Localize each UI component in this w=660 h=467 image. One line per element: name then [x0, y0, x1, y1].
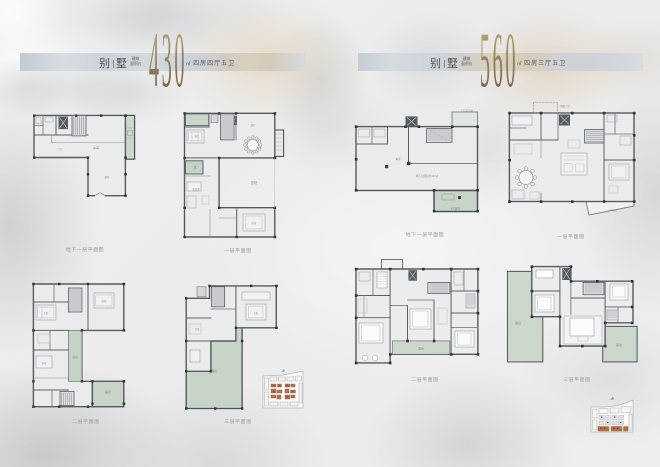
svg-text:梯: 梯	[194, 166, 197, 170]
svg-text:车库: 车库	[93, 145, 99, 150]
svg-text:露台: 露台	[105, 390, 111, 394]
svg-text:卧室: 卧室	[42, 361, 47, 365]
svg-text:露台: 露台	[418, 347, 424, 351]
svg-text:雨棚上空: 雨棚上空	[560, 104, 571, 108]
svg-text:入户花园: 入户花园	[607, 208, 618, 212]
svg-text:下沉庭院: 下沉庭院	[450, 207, 461, 211]
svg-text:主卧: 主卧	[44, 311, 49, 315]
svg-text:卧室: 卧室	[102, 299, 107, 303]
svg-text:客厅: 客厅	[195, 134, 200, 138]
svg-text:露台: 露台	[616, 342, 622, 347]
svg-text:餐厅: 餐厅	[251, 123, 256, 127]
svg-text:庭院: 庭院	[105, 175, 110, 179]
svg-text:露台: 露台	[515, 320, 521, 325]
svg-text:庭院: 庭院	[251, 180, 258, 185]
svg-text:起居室: 起居室	[192, 187, 200, 191]
svg-text:门厅: 门厅	[58, 147, 63, 151]
svg-text:车库: 车库	[395, 157, 401, 161]
svg-text:上空采光井: 上空采光井	[460, 109, 473, 113]
svg-text:主卧: 主卧	[254, 311, 259, 315]
svg-text:书房: 书房	[195, 327, 200, 331]
svg-text:露台: 露台	[211, 369, 217, 373]
svg-text:卧室: 卧室	[252, 221, 257, 225]
svg-text:地下室面积约160㎡: 地下室面积约160㎡	[416, 174, 439, 178]
svg-text:露台: 露台	[72, 355, 78, 359]
